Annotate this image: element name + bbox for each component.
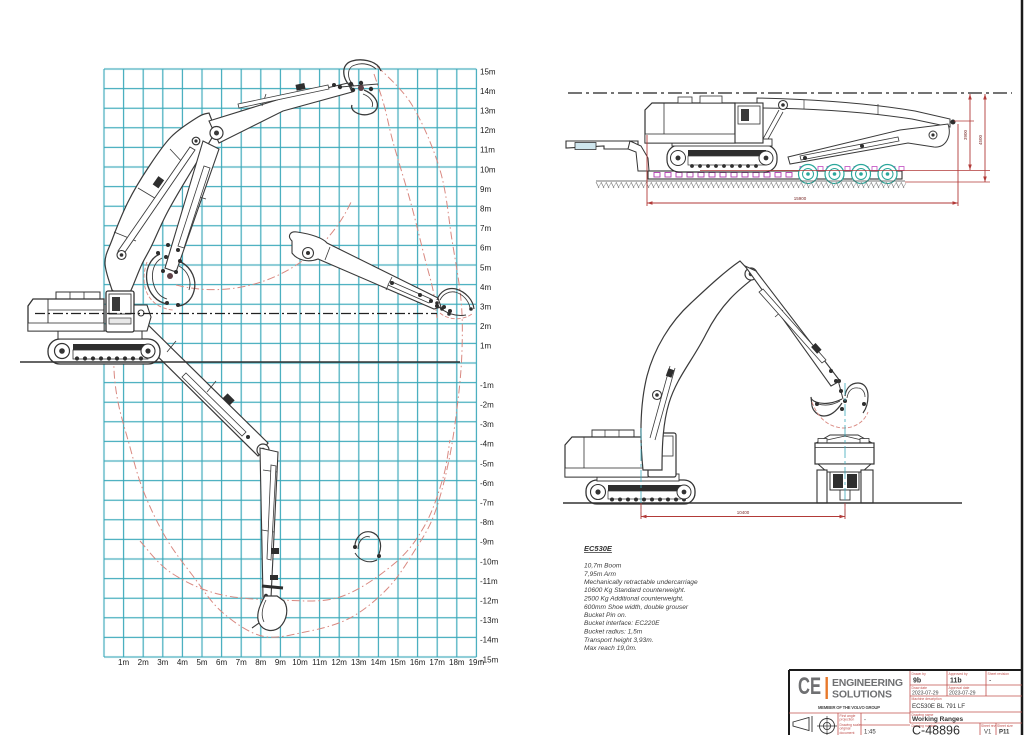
svg-text:EC530E: EC530E — [584, 544, 613, 553]
svg-text:projection: projection — [840, 718, 855, 722]
svg-text:7m: 7m — [480, 224, 491, 233]
svg-text:14m: 14m — [480, 87, 496, 96]
svg-text:9m: 9m — [275, 658, 286, 667]
svg-text:Bucket radius: 1,5m: Bucket radius: 1,5m — [584, 629, 643, 636]
svg-text:-1m: -1m — [480, 381, 494, 390]
svg-text:-2m: -2m — [480, 401, 494, 410]
svg-text:17m: 17m — [429, 658, 445, 667]
svg-text:Transport height 3,93m.: Transport height 3,93m. — [584, 637, 654, 644]
svg-text:11m: 11m — [312, 658, 327, 667]
svg-text:document: document — [840, 731, 855, 735]
svg-text:Sheet size: Sheet size — [997, 724, 1013, 728]
svg-text:5m: 5m — [480, 263, 491, 272]
svg-text:Bucket Pin on.: Bucket Pin on. — [584, 612, 627, 619]
svg-text:-10m: -10m — [480, 557, 499, 566]
svg-text:12m: 12m — [331, 658, 347, 667]
svg-text:CE: CE — [798, 673, 821, 700]
svg-text:15m: 15m — [390, 658, 406, 667]
svg-text:Sheet revision: Sheet revision — [988, 672, 1010, 676]
svg-text:1:45: 1:45 — [864, 730, 876, 735]
svg-text:6m: 6m — [480, 244, 491, 253]
svg-text:SOLUTIONS: SOLUTIONS — [832, 689, 892, 701]
svg-text:-: - — [864, 718, 866, 724]
svg-text:12m: 12m — [480, 126, 496, 135]
svg-text:EC530E BL 791 LF: EC530E BL 791 LF — [912, 703, 965, 710]
svg-text:3m: 3m — [480, 303, 491, 312]
svg-text:2023-07-29: 2023-07-29 — [949, 691, 976, 697]
svg-text:5m: 5m — [196, 658, 207, 667]
svg-text:-9m: -9m — [480, 538, 494, 547]
svg-text:C-48896: C-48896 — [912, 724, 960, 735]
svg-text:Drawn by: Drawn by — [912, 672, 927, 676]
svg-text:V1: V1 — [984, 730, 992, 735]
svg-text:-7m: -7m — [480, 499, 494, 508]
svg-text:9b: 9b — [913, 678, 921, 685]
svg-text:Max reach 19,0m.: Max reach 19,0m. — [584, 645, 637, 652]
svg-text:1m: 1m — [480, 342, 491, 351]
svg-text:-8m: -8m — [480, 518, 494, 527]
svg-text:-4m: -4m — [480, 440, 494, 449]
svg-text:original: original — [840, 727, 851, 731]
svg-text:Bucket interface: EC220E: Bucket interface: EC220E — [584, 620, 660, 627]
svg-text:8m: 8m — [255, 658, 266, 667]
svg-text:-5m: -5m — [480, 459, 494, 468]
svg-text:14m: 14m — [371, 658, 387, 667]
svg-text:3m: 3m — [157, 658, 168, 667]
svg-text:-14m: -14m — [480, 636, 499, 645]
svg-text:1m: 1m — [118, 658, 129, 667]
svg-text:19m: 19m — [469, 658, 485, 667]
svg-text:-12m: -12m — [480, 597, 499, 606]
svg-text:10600 Kg Standard counterweigh: 10600 Kg Standard counterweight. — [584, 587, 686, 594]
svg-text:13m: 13m — [480, 107, 496, 116]
svg-text:4500: 4500 — [978, 134, 983, 145]
svg-text:2m: 2m — [480, 322, 491, 331]
svg-text:3900: 3900 — [963, 129, 968, 140]
svg-text:-6m: -6m — [480, 479, 494, 488]
svg-text:-11m: -11m — [480, 577, 498, 586]
svg-text:Machine description: Machine description — [912, 697, 942, 701]
svg-text:Working Ranges: Working Ranges — [912, 716, 964, 723]
svg-text:7m: 7m — [236, 658, 247, 667]
svg-text:4m: 4m — [480, 283, 491, 292]
svg-text:Sheet rev: Sheet rev — [981, 724, 996, 728]
svg-text:2500 Kg Additional counterweig: 2500 Kg Additional counterweight. — [583, 596, 684, 603]
svg-text:2023-07-29: 2023-07-29 — [912, 691, 939, 697]
svg-text:11m: 11m — [480, 146, 495, 155]
svg-text:6m: 6m — [216, 658, 227, 667]
svg-text:Draw date: Draw date — [912, 686, 928, 690]
svg-text:15m: 15m — [480, 67, 496, 76]
svg-text:9m: 9m — [480, 185, 491, 194]
svg-text:Approved by: Approved by — [949, 672, 968, 676]
svg-text:16m: 16m — [410, 658, 426, 667]
svg-text:Mechanically retractable under: Mechanically retractable undercarriage — [584, 579, 698, 586]
svg-text:7,95m Arm: 7,95m Arm — [584, 571, 617, 578]
svg-text:15900: 15900 — [794, 196, 807, 201]
svg-text:18m: 18m — [449, 658, 465, 667]
svg-text:10m: 10m — [292, 658, 308, 667]
svg-text:P11: P11 — [999, 730, 1010, 735]
svg-text:ENGINEERING: ENGINEERING — [832, 677, 903, 689]
svg-text:10,7m Boom: 10,7m Boom — [584, 563, 622, 570]
svg-text:600mm Shoe width, double grous: 600mm Shoe width, double grouser — [584, 604, 689, 611]
svg-text:10400: 10400 — [737, 510, 750, 515]
svg-text:13m: 13m — [351, 658, 367, 667]
svg-text:-3m: -3m — [480, 420, 494, 429]
svg-text:-13m: -13m — [480, 616, 499, 625]
svg-text:2m: 2m — [138, 658, 149, 667]
svg-text:4m: 4m — [177, 658, 188, 667]
svg-text:MEMBER OF THE VOLVO GROUP: MEMBER OF THE VOLVO GROUP — [818, 705, 880, 710]
svg-text:Approval date: Approval date — [949, 686, 970, 690]
svg-text:-: - — [989, 678, 992, 685]
svg-text:10m: 10m — [480, 165, 496, 174]
svg-text:8m: 8m — [480, 205, 491, 214]
svg-text:11b: 11b — [950, 678, 962, 685]
